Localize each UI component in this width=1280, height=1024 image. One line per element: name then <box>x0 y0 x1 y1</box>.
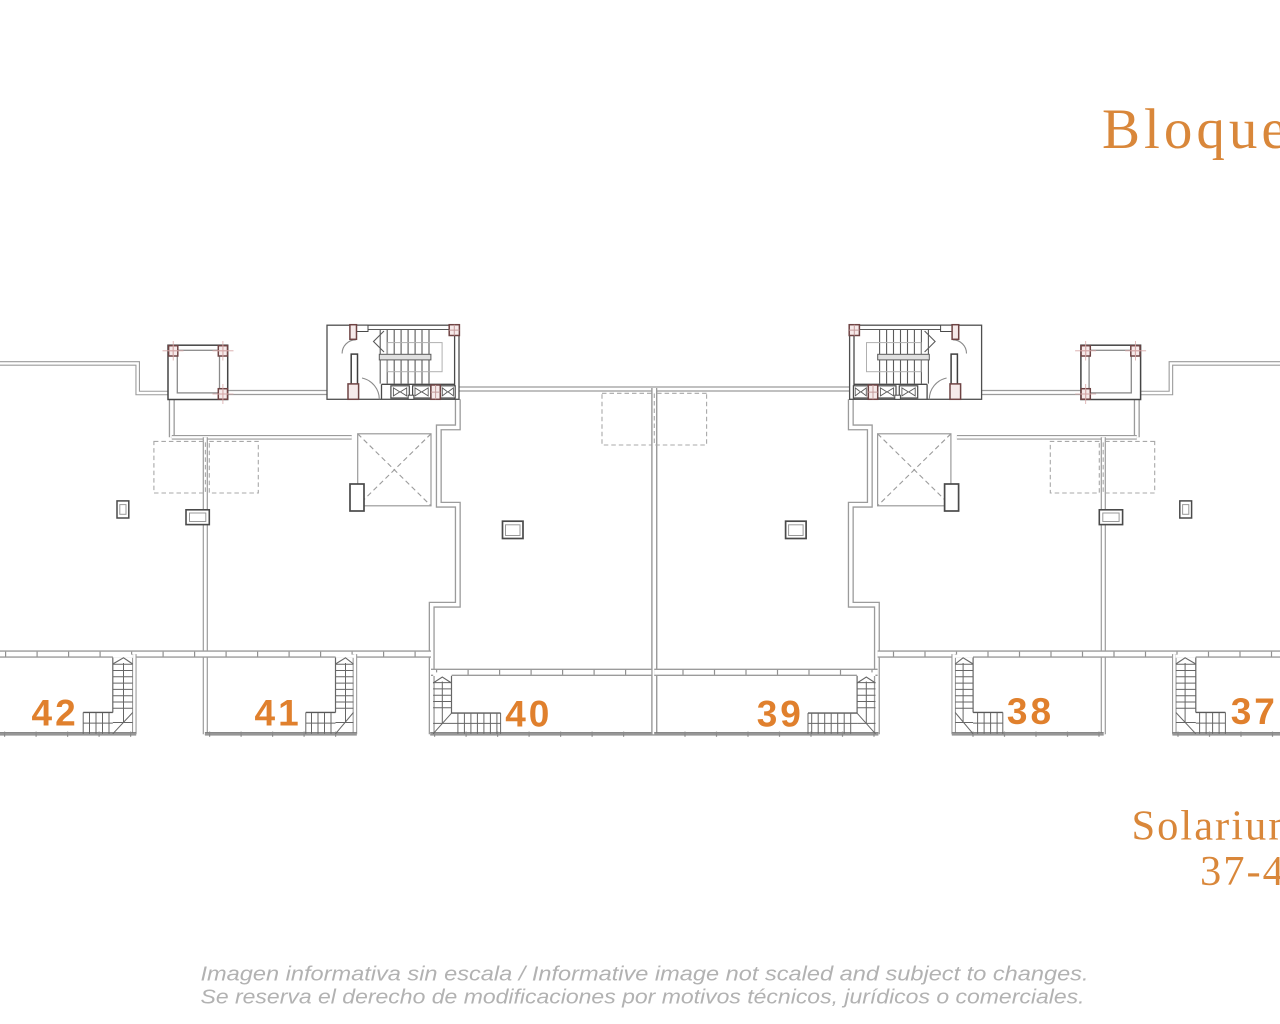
svg-text:41: 41 <box>255 693 302 734</box>
svg-text:38: 38 <box>1007 691 1054 732</box>
svg-text:39: 39 <box>757 694 804 735</box>
svg-text:37-42: 37-42 <box>1200 848 1280 895</box>
svg-text:37: 37 <box>1231 691 1278 732</box>
svg-text:Imagen informativa sin escala: Imagen informativa sin escala / Informat… <box>201 963 1089 985</box>
svg-text:40: 40 <box>505 694 552 735</box>
svg-text:Bloque 8: Bloque 8 <box>1102 98 1280 161</box>
svg-text:Se reserva el derecho de modif: Se reserva el derecho de modificaciones … <box>201 986 1085 1008</box>
svg-text:Solarium: Solarium <box>1132 803 1280 850</box>
svg-text:42: 42 <box>32 693 79 734</box>
